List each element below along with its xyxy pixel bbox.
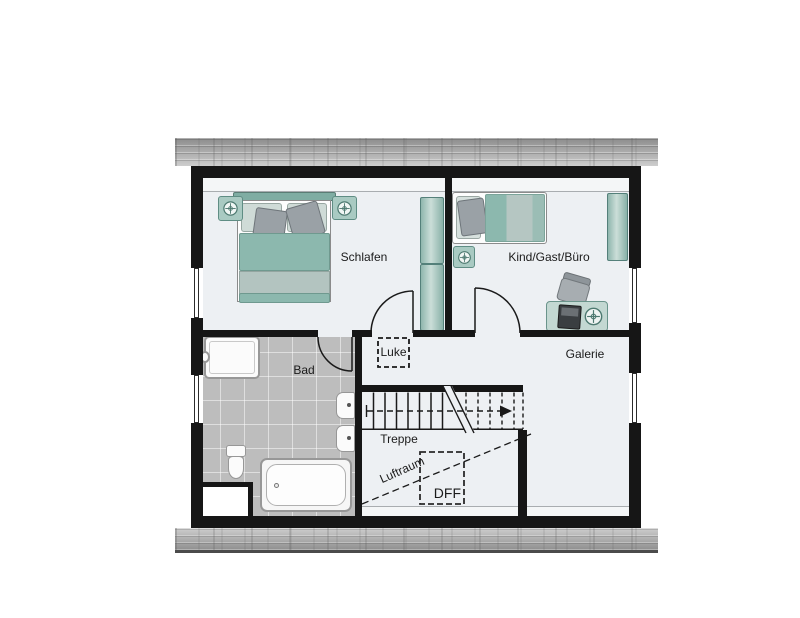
- room-label-galerie: Galerie: [549, 347, 621, 361]
- bed-foot-bar: [239, 293, 330, 303]
- bed-blanket: [485, 194, 545, 242]
- laptop-screen: [561, 307, 579, 316]
- window-schlafen: [191, 268, 203, 318]
- single-bed: [452, 192, 547, 244]
- bath-niche-wall-top: [203, 482, 253, 487]
- roof-band-bottom: [175, 528, 658, 553]
- room-label-kind-gast-buero: Kind/Gast/Büro: [494, 250, 604, 264]
- desk-lamp-icon: [583, 306, 604, 327]
- washbasin-1: [336, 392, 355, 419]
- wall-right-seg1: [629, 166, 641, 268]
- plant-icon: [336, 200, 353, 217]
- floorplan-canvas: Schlafen Kind/Gast/Büro Galerie Bad Luke…: [0, 0, 800, 618]
- bath-niche: [203, 487, 248, 516]
- annotation-luke: Luke: [377, 345, 410, 359]
- wall-left-seg1: [191, 166, 203, 268]
- wall-void-right: [518, 430, 527, 516]
- nightstand-right: [332, 196, 357, 220]
- window-frame: [632, 268, 637, 323]
- nightstand-kind: [453, 246, 475, 268]
- desk: [546, 301, 608, 332]
- wall-bath-right: [355, 330, 362, 516]
- bed-pillow-gray: [457, 197, 489, 236]
- wall-divider-bedrooms: [445, 178, 452, 337]
- plant-icon: [457, 250, 472, 265]
- basin-drain: [347, 403, 351, 407]
- basin-drain: [347, 436, 351, 440]
- bed-blanket-light: [239, 271, 330, 295]
- wall-hall-seg1: [203, 330, 318, 337]
- shower: [204, 336, 260, 379]
- shower-inner: [209, 341, 255, 374]
- wall-right-seg3: [629, 423, 641, 528]
- window-bad: [191, 375, 203, 423]
- wall-left-seg3: [191, 423, 203, 528]
- window-kind: [629, 268, 641, 323]
- bathtub-drain: [274, 483, 279, 488]
- wall-right-seg2: [629, 323, 641, 373]
- wardrobe-schlafen: [420, 197, 444, 264]
- wall-bottom: [191, 516, 641, 528]
- plant-icon: [222, 200, 239, 217]
- window-frame: [194, 375, 199, 423]
- bed-blanket-teal: [239, 233, 330, 271]
- window-frame: [632, 373, 637, 423]
- annotation-dff: DFF: [417, 485, 461, 501]
- bathtub: [260, 458, 352, 512]
- toilet-bowl: [228, 456, 244, 479]
- knee-strip-top: [203, 178, 629, 191]
- annotation-treppe: Treppe: [363, 432, 435, 446]
- roof-band-top: [175, 138, 658, 166]
- laptop: [557, 304, 582, 330]
- wardrobe-kind: [607, 193, 628, 261]
- washbasin-2: [336, 425, 355, 452]
- bath-niche-wall-right: [248, 482, 253, 516]
- room-label-bad: Bad: [283, 363, 325, 377]
- nightstand-left: [218, 196, 243, 221]
- window-frame: [194, 268, 199, 318]
- wall-top: [191, 166, 641, 178]
- wall-left-seg2: [191, 318, 203, 375]
- wardrobe-schlafen-lower: [420, 264, 444, 331]
- wall-hall-seg3: [413, 330, 475, 337]
- room-label-schlafen: Schlafen: [326, 250, 402, 264]
- wall-hall-seg4: [520, 330, 629, 337]
- wall-stair-top: [355, 385, 523, 392]
- window-galerie: [629, 373, 641, 423]
- double-bed: [236, 192, 333, 309]
